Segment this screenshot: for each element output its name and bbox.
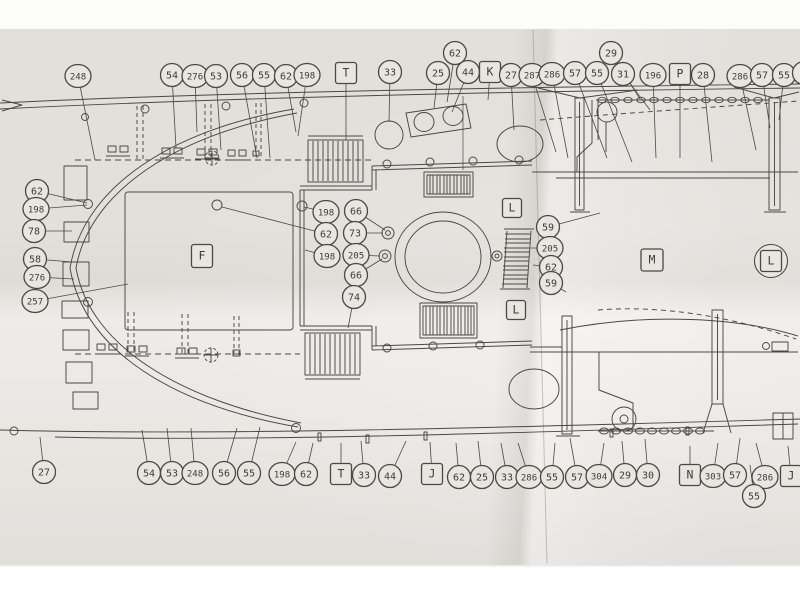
callout-label: 55 (778, 71, 790, 82)
callout-label: 304 (591, 473, 607, 483)
callout-label: 59 (545, 279, 557, 290)
callout-label: 286 (544, 71, 560, 81)
callout-label: 54 (166, 71, 178, 82)
callout-label: 28 (697, 71, 709, 82)
callouts-layer: 2485427653565562198T33256244K27287286575… (22, 42, 800, 508)
callout-label: N (687, 468, 694, 482)
callout-label: 62 (31, 187, 43, 198)
callout-label: 25 (432, 69, 444, 80)
callout-label: 74 (348, 293, 360, 304)
callout-label: 57 (571, 473, 583, 484)
callout-57: 57 (751, 64, 774, 129)
callout-205: 205 (343, 244, 380, 267)
callout-74: 74 (343, 286, 366, 329)
deck-plan-drawing: 2485427653565562198T33256244K27287286575… (0, 0, 800, 600)
callout-label: 62 (449, 49, 461, 60)
callout-28: 28 (692, 64, 715, 163)
callout-N: N (680, 446, 701, 486)
callout-label: 59 (542, 223, 554, 234)
callout-44: 44 (379, 441, 407, 488)
callout-label: 44 (384, 472, 396, 483)
callout-label: 29 (605, 49, 617, 60)
callout-196: 196 (640, 64, 666, 159)
callout-59: 59 (537, 213, 601, 239)
callout-label: 62 (320, 230, 332, 241)
callout-label: 56 (236, 71, 248, 82)
callout-33: 33 (353, 441, 376, 487)
callout-label: 57 (729, 471, 741, 482)
callout-label: L (509, 201, 516, 215)
callout-label: 198 (28, 206, 44, 216)
callout-J: J (422, 442, 443, 485)
callout-label: 53 (210, 72, 222, 83)
callout-label: 73 (349, 229, 361, 240)
callout-304: 304 (586, 443, 612, 488)
callout-label: 286 (521, 474, 537, 484)
callout-27: 27 (33, 437, 56, 484)
callout-F: F (192, 245, 213, 268)
callout-33: 33 (379, 61, 402, 123)
callout-label: 78 (28, 227, 40, 238)
callout-29: 29 (614, 441, 637, 487)
callout-label: 57 (569, 69, 581, 80)
callout-label: 198 (319, 253, 335, 263)
callout-label: P (677, 67, 684, 81)
callout-M: M (641, 249, 663, 271)
callout-label: 62 (453, 473, 465, 484)
callout-62: 62 (448, 443, 471, 489)
callout-label: 57 (756, 71, 768, 82)
callout-label: 55 (258, 71, 270, 82)
callout-label: F (199, 249, 206, 263)
callout-78: 78 (23, 220, 73, 243)
callout-label: 66 (350, 207, 362, 218)
callout-label: 198 (318, 209, 334, 219)
callout-label: 303 (705, 473, 721, 483)
callout-L: L (507, 301, 526, 320)
callout-label: 44 (462, 68, 474, 79)
callout-label: 25 (476, 473, 488, 484)
callout-label: 276 (29, 274, 45, 284)
callout-label: 53 (166, 469, 178, 480)
callout-label: T (338, 467, 345, 481)
callout-label: 196 (645, 72, 661, 82)
callout-label: 27 (505, 71, 517, 82)
callout-55: 55 (238, 427, 261, 485)
callout-label: K (487, 65, 494, 79)
callout-198: 198 (269, 442, 296, 486)
callout-label: M (649, 253, 656, 267)
callout-286: 286 (752, 443, 778, 489)
callout-198: 198 (304, 201, 339, 224)
callout-L: L (755, 245, 788, 278)
callout-label: 55 (748, 492, 760, 503)
callout-label: L (768, 254, 775, 268)
callout-303: 303 (700, 443, 726, 488)
callout-label: 31 (617, 70, 629, 81)
callout-54: 54 (161, 64, 184, 149)
callout-label: 287 (524, 72, 540, 82)
callout-label: J (788, 469, 795, 483)
callout-label: 276 (187, 73, 203, 83)
callout-label: 248 (70, 73, 86, 83)
callout-label: 62 (300, 470, 312, 481)
callout-label: T (343, 66, 350, 80)
callout-label: 198 (274, 471, 290, 481)
callout-198: 198 (305, 245, 340, 268)
callout-label: 29 (619, 471, 631, 482)
callout-P: P (670, 64, 691, 159)
callout-33: 33 (496, 443, 519, 489)
callout-label: 33 (358, 471, 370, 482)
callout-286: 286 (516, 443, 542, 489)
callout-56: 56 (213, 428, 238, 485)
callout-label: 257 (27, 298, 43, 308)
callout-J: J (781, 446, 800, 487)
callout-25: 25 (427, 62, 450, 109)
callout-label: 66 (350, 271, 362, 282)
callout-label: 55 (591, 69, 603, 80)
callout-label: J (429, 467, 436, 481)
callout-label: 27 (38, 468, 50, 479)
callout-label: 58 (29, 255, 41, 266)
callout-57: 57 (724, 438, 747, 487)
callout-57: 57 (566, 438, 589, 489)
callout-label: 55 (243, 469, 255, 480)
callout-276: 276 (24, 266, 74, 289)
callout-label: 205 (542, 245, 558, 255)
callout-53: 53 (161, 428, 184, 485)
callout-label: 198 (299, 72, 315, 82)
callout-L: L (503, 199, 522, 218)
callout-62: 62 (295, 443, 318, 486)
callout-T: T (336, 63, 357, 141)
callout-label: 248 (187, 470, 203, 480)
callout-label: 56 (218, 469, 230, 480)
callout-label: 30 (642, 471, 654, 482)
callout-label: 33 (501, 473, 513, 484)
callout-59: 59 (540, 272, 567, 295)
callout-T: T (331, 443, 352, 485)
callout-label: L (513, 303, 520, 317)
callout-K: K (480, 62, 501, 101)
callout-30: 30 (637, 439, 660, 487)
callout-label: 55 (546, 473, 558, 484)
callout-248: 248 (65, 65, 95, 161)
callout-label: 286 (757, 474, 773, 484)
callout-25: 25 (471, 441, 494, 489)
callout-label: 54 (143, 469, 155, 480)
callout-label: 33 (384, 68, 396, 79)
callout-label: 286 (732, 73, 748, 83)
callout-label: 62 (280, 72, 292, 83)
callout-248: 248 (182, 428, 208, 485)
photographed-blueprint-scene: 2485427653565562198T33256244K27287286575… (0, 0, 800, 600)
callout-label: 205 (348, 252, 364, 262)
